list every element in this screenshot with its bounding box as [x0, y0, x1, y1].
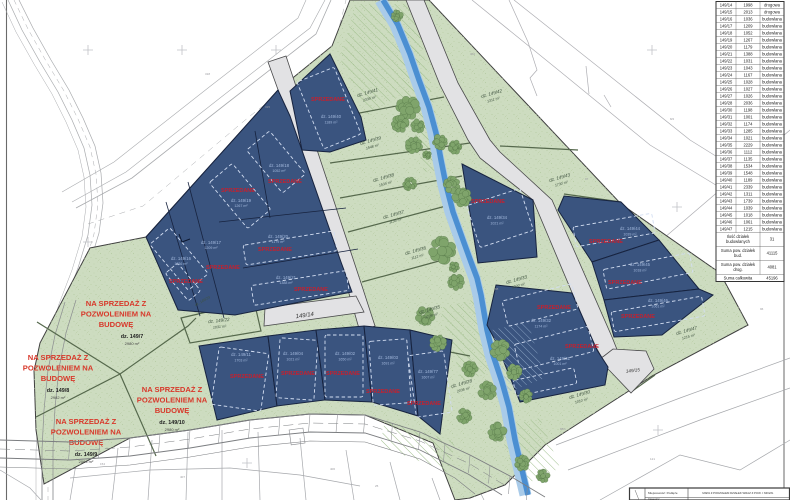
svg-text:149/24: 149/24 — [720, 73, 733, 78]
svg-text:dz. 149/32: dz. 149/32 — [531, 318, 552, 323]
svg-text:budowlana: budowlana — [762, 136, 783, 141]
svg-text:SPRZEDANE: SPRZEDANE — [366, 389, 400, 395]
svg-text:SPRZEDANE: SPRZEDANE — [537, 305, 571, 311]
svg-text:budowlana: budowlana — [762, 31, 783, 36]
svg-text:SPRZEDANE: SPRZEDANE — [294, 287, 328, 293]
svg-text:drogowa: drogowa — [764, 3, 780, 8]
svg-text:2982 m²: 2982 m² — [51, 395, 66, 400]
svg-text:1739: 1739 — [743, 199, 753, 204]
svg-text:budowlana: budowlana — [762, 52, 783, 57]
svg-text:SPRZEDANE: SPRZEDANE — [407, 401, 441, 407]
svg-text:149/38: 149/38 — [720, 164, 733, 169]
svg-text:SPRZEDANE: SPRZEDANE — [565, 344, 599, 350]
svg-text:2339: 2339 — [743, 185, 753, 190]
svg-text:POZWOLENIEM NA: POZWOLENIEM NA — [137, 396, 208, 405]
svg-text:drogowa: drogowa — [764, 10, 780, 15]
svg-text:budowlana: budowlana — [762, 206, 783, 211]
svg-text:1036: 1036 — [743, 17, 753, 22]
svg-text:1021 m²: 1021 m² — [490, 222, 504, 226]
svg-text:2229: 2229 — [743, 143, 753, 148]
svg-text:149/27: 149/27 — [720, 94, 733, 99]
svg-text:88: 88 — [495, 287, 499, 291]
svg-text:4081: 4081 — [767, 265, 777, 270]
svg-text:SPRZEDANE: SPRZEDANE — [221, 188, 255, 194]
svg-text:budowlana: budowlana — [762, 59, 783, 64]
svg-text:1112: 1112 — [744, 150, 753, 155]
svg-text:1198: 1198 — [744, 108, 754, 113]
svg-text:25: 25 — [375, 484, 379, 488]
svg-text:Miejscowość: Podłęże: Miejscowość: Podłęże — [648, 491, 678, 495]
svg-text:budowlana: budowlana — [762, 227, 783, 232]
svg-text:budowlana: budowlana — [762, 87, 783, 92]
svg-text:1215: 1215 — [743, 227, 753, 232]
svg-text:149/28: 149/28 — [720, 101, 733, 106]
svg-text:1167: 1167 — [744, 73, 754, 78]
svg-text:budowlana: budowlana — [762, 73, 783, 78]
svg-text:budowlana: budowlana — [762, 115, 783, 120]
svg-text:1179 m²: 1179 m² — [272, 240, 286, 244]
svg-text:1018: 1018 — [743, 213, 753, 218]
svg-text:2036: 2036 — [743, 101, 753, 106]
svg-text:budowlana: budowlana — [762, 185, 783, 190]
svg-text:1174: 1174 — [744, 122, 754, 127]
svg-text:NA SPRZEDAŻ Z: NA SPRZEDAŻ Z — [56, 417, 117, 426]
svg-text:149/17: 149/17 — [720, 24, 733, 29]
svg-text:149/46: 149/46 — [720, 220, 733, 225]
svg-text:8/2: 8/2 — [670, 117, 675, 121]
svg-text:1388: 1388 — [743, 52, 753, 57]
svg-text:1548: 1548 — [743, 171, 753, 176]
svg-text:1031: 1031 — [743, 59, 753, 64]
svg-text:1534: 1534 — [743, 164, 753, 169]
svg-text:SPRZEDANE: SPRZEDANE — [281, 371, 315, 377]
svg-text:1691 m²: 1691 m² — [381, 362, 395, 366]
svg-text:45196: 45196 — [766, 276, 778, 281]
svg-text:149/47: 149/47 — [720, 227, 733, 232]
svg-text:97: 97 — [585, 177, 589, 181]
svg-text:budowlana: budowlana — [762, 199, 783, 204]
svg-text:dz. 149/44: dz. 149/44 — [620, 226, 641, 231]
svg-text:1061 m²: 1061 m² — [651, 305, 665, 309]
svg-text:149/20: 149/20 — [720, 45, 733, 50]
svg-text:149/16: 149/16 — [720, 17, 733, 22]
svg-text:1135: 1135 — [744, 157, 754, 162]
svg-text:149/15: 149/15 — [720, 10, 733, 15]
svg-text:bud.: bud. — [734, 253, 742, 258]
svg-text:SPRZEDANE: SPRZEDANE — [258, 247, 292, 253]
svg-text:1267: 1267 — [743, 38, 753, 43]
svg-text:BUDOWĘ: BUDOWĘ — [99, 320, 134, 329]
svg-text:dz. 149/45: dz. 149/45 — [630, 262, 651, 267]
svg-text:SPRZEDANE: SPRZEDANE — [326, 371, 360, 377]
svg-text:dz. 149/03: dz. 149/03 — [378, 355, 399, 360]
svg-text:dz. 149/40: dz. 149/40 — [321, 114, 342, 119]
svg-text:1001 m²: 1001 m² — [553, 362, 567, 366]
svg-text:dz. 149/20: dz. 149/20 — [268, 234, 289, 239]
svg-text:dz. 149/9: dz. 149/9 — [75, 452, 97, 458]
svg-text:1388 m²: 1388 m² — [279, 281, 293, 285]
svg-text:dz. 149/8: dz. 149/8 — [47, 388, 69, 394]
svg-text:budowlana: budowlana — [762, 192, 783, 197]
svg-text:149/18: 149/18 — [720, 31, 733, 36]
svg-text:1189 m²: 1189 m² — [325, 121, 339, 125]
svg-text:budowlana: budowlana — [762, 66, 783, 71]
svg-text:budowlana: budowlana — [762, 213, 783, 218]
svg-text:dz. 149/02: dz. 149/02 — [335, 351, 356, 356]
svg-text:dz. 149/46: dz. 149/46 — [648, 298, 669, 303]
svg-text:1179: 1179 — [744, 45, 754, 50]
svg-text:149/25: 149/25 — [720, 80, 733, 85]
svg-text:318: 318 — [205, 72, 210, 76]
svg-text:dz. 149/18: dz. 149/18 — [269, 163, 290, 168]
svg-text:BUDOWĘ: BUDOWĘ — [69, 438, 104, 447]
svg-text:1052: 1052 — [743, 31, 753, 36]
svg-text:149/22: 149/22 — [720, 59, 733, 64]
svg-text:budowlana: budowlana — [762, 122, 783, 127]
svg-text:dz. 149/16: dz. 149/16 — [171, 256, 192, 261]
svg-text:budowlana: budowlana — [762, 171, 783, 176]
svg-text:149/36: 149/36 — [720, 150, 733, 155]
svg-text:88/1: 88/1 — [560, 427, 566, 431]
svg-text:dz. 149/19: dz. 149/19 — [231, 198, 252, 203]
svg-text:NA SPRZEDAŻ Z: NA SPRZEDAŻ Z — [86, 299, 147, 308]
svg-text:96: 96 — [760, 307, 764, 311]
svg-text:SPRZEDANE: SPRZEDANE — [206, 265, 240, 271]
svg-text:2980 m²: 2980 m² — [125, 341, 140, 346]
svg-text:1001: 1001 — [743, 115, 753, 120]
svg-text:407: 407 — [180, 475, 185, 479]
svg-text:1311: 1311 — [744, 192, 754, 197]
svg-text:POZWOLENIEM NA: POZWOLENIEM NA — [23, 364, 94, 373]
svg-text:NA SPRZEDAŻ Z: NA SPRZEDAŻ Z — [142, 385, 203, 394]
svg-text:149/19: 149/19 — [720, 38, 733, 43]
svg-text:dz. 149/04: dz. 149/04 — [283, 351, 304, 356]
svg-text:1267 m²: 1267 m² — [234, 204, 248, 208]
svg-text:1703 m²: 1703 m² — [234, 359, 248, 363]
svg-text:149/45: 149/45 — [720, 213, 733, 218]
svg-text:BUDOWĘ: BUDOWĘ — [41, 374, 76, 383]
svg-text:1021 m²: 1021 m² — [286, 358, 300, 362]
svg-text:budowlana: budowlana — [762, 101, 783, 106]
svg-text:1174 m²: 1174 m² — [535, 325, 549, 329]
svg-text:budowlanych: budowlanych — [726, 239, 751, 244]
svg-text:149/30: 149/30 — [720, 108, 733, 113]
svg-text:149/37: 149/37 — [720, 157, 733, 162]
svg-text:41115: 41115 — [767, 251, 778, 256]
svg-text:1052 m²: 1052 m² — [272, 169, 286, 173]
svg-text:406: 406 — [330, 467, 335, 471]
svg-text:budowlana: budowlana — [762, 24, 783, 29]
svg-text:121: 121 — [650, 457, 655, 461]
svg-text:dz. 149/77: dz. 149/77 — [418, 369, 439, 374]
svg-text:Suma całkowita: Suma całkowita — [724, 276, 753, 281]
svg-text:budowlana: budowlana — [762, 38, 783, 43]
svg-text:149/26: 149/26 — [720, 87, 733, 92]
svg-text:1028: 1028 — [743, 80, 753, 85]
svg-text:SPRZEDANE: SPRZEDANE — [230, 374, 264, 380]
svg-text:1039: 1039 — [743, 206, 753, 211]
svg-text:315: 315 — [265, 105, 270, 109]
svg-text:149/42: 149/42 — [720, 192, 733, 197]
svg-text:149/43: 149/43 — [720, 199, 733, 204]
svg-text:dz. 149/17: dz. 149/17 — [201, 240, 222, 245]
svg-text:SPRZEDANE: SPRZEDANE — [311, 97, 345, 103]
svg-text:149/32: 149/32 — [720, 122, 733, 127]
svg-text:149/35: 149/35 — [720, 143, 733, 148]
svg-text:1021: 1021 — [743, 136, 753, 141]
svg-text:SPRZEDANE: SPRZEDANE — [608, 280, 642, 286]
svg-text:SPRZEDANE: SPRZEDANE — [169, 279, 203, 285]
svg-text:dz. 149/7: dz. 149/7 — [121, 334, 143, 340]
svg-text:2013: 2013 — [743, 10, 753, 15]
svg-text:149/14: 149/14 — [720, 3, 733, 8]
svg-text:budowlana: budowlana — [762, 45, 783, 50]
svg-text:149/39: 149/39 — [720, 171, 733, 176]
svg-text:149/23: 149/23 — [720, 66, 733, 71]
svg-text:MAPA Z PODZIAŁEM DZIAŁEK WRAZ: MAPA Z PODZIAŁEM DZIAŁEK WRAZ Z POW. I N… — [702, 491, 773, 495]
svg-text:SPRZEDANE: SPRZEDANE — [268, 179, 302, 185]
svg-text:SPRZEDANE: SPRZEDANE — [621, 314, 655, 320]
svg-text:1607 m²: 1607 m² — [421, 376, 435, 380]
svg-text:POZWOLENIEM NA: POZWOLENIEM NA — [81, 310, 152, 319]
svg-text:149/21: 149/21 — [720, 52, 733, 57]
svg-text:dz. 149/21: dz. 149/21 — [276, 275, 297, 280]
svg-text:149/41: 149/41 — [720, 185, 733, 190]
svg-text:budowlana: budowlana — [762, 157, 783, 162]
svg-text:302: 302 — [470, 52, 475, 56]
svg-text:149/44: 149/44 — [720, 206, 733, 211]
svg-text:1189: 1189 — [744, 178, 754, 183]
svg-text:1043: 1043 — [743, 66, 753, 71]
svg-text:budowlana: budowlana — [762, 108, 783, 113]
svg-text:1039 m²: 1039 m² — [623, 233, 637, 237]
svg-text:budowlana: budowlana — [762, 129, 783, 134]
svg-text:dz. 149/34: dz. 149/34 — [487, 215, 508, 220]
svg-text:SPRZEDANE: SPRZEDANE — [589, 239, 623, 245]
svg-text:1650 m²: 1650 m² — [338, 358, 352, 362]
svg-text:dz. 149/10: dz. 149/10 — [159, 420, 184, 426]
svg-text:drog.: drog. — [733, 267, 742, 272]
svg-text:1061: 1061 — [743, 220, 753, 225]
svg-text:1209 m²: 1209 m² — [204, 246, 218, 250]
svg-text:SPRZEDANE: SPRZEDANE — [471, 199, 505, 205]
svg-text:149/40: 149/40 — [720, 178, 733, 183]
svg-text:1285: 1285 — [743, 129, 753, 134]
svg-text:budowlana: budowlana — [762, 80, 783, 85]
svg-text:budowlana: budowlana — [762, 220, 783, 225]
svg-text:149/34: 149/34 — [720, 136, 733, 141]
svg-text:149/31: 149/31 — [720, 115, 733, 120]
svg-text:POZWOLENIEM NA: POZWOLENIEM NA — [51, 428, 122, 437]
svg-text:dz. 149/11: dz. 149/11 — [231, 352, 251, 357]
svg-text:budowlana: budowlana — [762, 164, 783, 169]
svg-text:1018 m²: 1018 m² — [633, 269, 647, 273]
svg-text:154: 154 — [100, 462, 105, 466]
svg-text:1998: 1998 — [743, 3, 753, 8]
svg-text:NA SPRZEDAŻ Z: NA SPRZEDAŻ Z — [28, 353, 89, 362]
svg-text:budowlana: budowlana — [762, 143, 783, 148]
svg-text:budowlana: budowlana — [762, 94, 783, 99]
svg-text:budowlana: budowlana — [762, 178, 783, 183]
svg-text:1027: 1027 — [743, 87, 753, 92]
svg-text:budowlana: budowlana — [762, 17, 783, 22]
svg-text:BUDOWĘ: BUDOWĘ — [155, 406, 190, 415]
svg-text:1209: 1209 — [743, 24, 753, 29]
svg-text:1036 m²: 1036 m² — [174, 262, 188, 266]
svg-text:149/33: 149/33 — [720, 129, 733, 134]
svg-text:31: 31 — [770, 237, 775, 242]
svg-text:2064 m²: 2064 m² — [79, 459, 94, 464]
svg-text:1026: 1026 — [743, 94, 753, 99]
svg-text:budowlana: budowlana — [762, 150, 783, 155]
